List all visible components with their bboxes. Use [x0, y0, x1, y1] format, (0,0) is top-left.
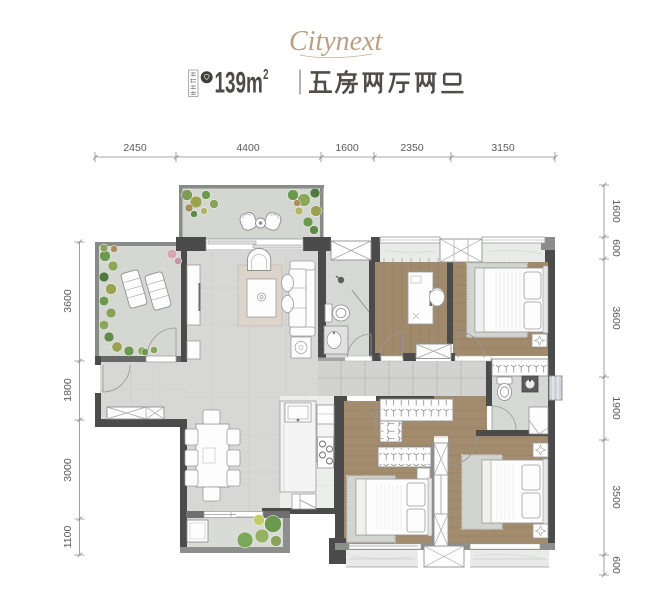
svg-text:1800: 1800 [62, 378, 74, 402]
svg-text:2: 2 [263, 66, 268, 83]
svg-text:2350: 2350 [400, 142, 424, 154]
svg-text:3500: 3500 [610, 485, 622, 509]
svg-text:3150: 3150 [491, 142, 515, 154]
svg-text:1900: 1900 [610, 396, 622, 420]
svg-text:4400: 4400 [236, 142, 260, 154]
svg-text:3600: 3600 [610, 306, 622, 330]
svg-text:1100: 1100 [62, 526, 74, 549]
svg-text:1600: 1600 [610, 199, 622, 223]
svg-text:600: 600 [610, 239, 622, 257]
svg-text:3000: 3000 [62, 458, 74, 482]
svg-text:2450: 2450 [123, 142, 147, 154]
svg-text:Citynext: Citynext [289, 26, 384, 57]
svg-text:1600: 1600 [335, 142, 359, 154]
svg-text:139m: 139m [215, 67, 263, 99]
svg-text:3600: 3600 [62, 289, 74, 313]
svg-text:600: 600 [610, 556, 622, 574]
